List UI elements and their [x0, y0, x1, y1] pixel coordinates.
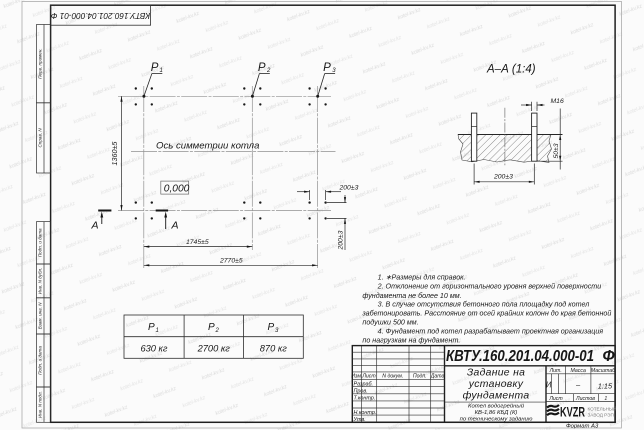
svg-text:A: A: [91, 220, 99, 232]
svg-text:3. В случае отсутствия бетонно: 3. В случае отсутствия бетонного пола пл…: [378, 300, 590, 308]
svg-text:4. Фундамент под котел разраба: 4. Фундамент под котел разрабатывает про…: [378, 328, 604, 336]
svg-text:Справ. N: Справ. N: [38, 128, 43, 148]
svg-text:по нагрузкам на фундамент.: по нагрузкам на фундамент.: [362, 337, 460, 345]
svg-text:2. Отклонение от горизонтально: 2. Отклонение от горизонтального уровня …: [377, 283, 602, 291]
svg-text:1. ∗Размеры для справок.: 1. ∗Размеры для справок.: [378, 274, 466, 282]
svg-text:Котел водогрейный: Котел водогрейный: [468, 403, 525, 410]
svg-text:Утв.: Утв.: [353, 417, 366, 423]
svg-text:Разраб.: Разраб.: [354, 381, 374, 387]
svg-text:P: P: [208, 322, 215, 333]
svg-text:Подп. и дата: Подп. и дата: [38, 228, 43, 257]
svg-text:Листов: Листов: [575, 396, 595, 402]
svg-text:P: P: [151, 62, 159, 74]
svg-text:Пров.: Пров.: [354, 389, 368, 395]
svg-text:0,000: 0,000: [164, 184, 190, 195]
svg-text:200±3: 200±3: [339, 185, 359, 192]
svg-text:КОТЕЛЬНЫЙ: КОТЕЛЬНЫЙ: [588, 405, 617, 412]
svg-text:P: P: [148, 322, 155, 333]
svg-text:630 кг: 630 кг: [140, 344, 167, 354]
svg-text:1745±5: 1745±5: [186, 239, 209, 246]
svg-text:фундамента: фундамента: [463, 390, 530, 402]
svg-text:P: P: [268, 322, 275, 333]
svg-text:–: –: [575, 381, 581, 390]
svg-text:Перв. примен.: Перв. примен.: [38, 48, 43, 79]
svg-text:Н.контр.: Н.контр.: [354, 410, 377, 416]
svg-text:2: 2: [266, 68, 271, 74]
svg-text:Подп.: Подп.: [413, 374, 427, 380]
svg-text:P: P: [258, 62, 266, 74]
svg-text:Ф: Ф: [603, 348, 616, 365]
svg-text:Т.контр.: Т.контр.: [354, 396, 376, 402]
svg-text:Задание на: Задание на: [467, 367, 525, 378]
svg-text:ЗАВОД РЭП: ЗАВОД РЭП: [588, 413, 614, 418]
svg-text:Масса: Масса: [571, 368, 586, 374]
svg-text:М16: М16: [551, 98, 564, 105]
svg-text:КВТУ.160.201.04.000-01 Ф: КВТУ.160.201.04.000-01 Ф: [51, 11, 151, 20]
svg-text:И: И: [546, 381, 552, 390]
svg-text:P: P: [323, 62, 331, 74]
svg-text:1:15: 1:15: [598, 381, 613, 390]
svg-text:1360±5: 1360±5: [110, 141, 119, 166]
svg-text:1: 1: [160, 68, 163, 74]
svg-text:200±3: 200±3: [493, 174, 513, 181]
svg-text:фундамента не более 10 мм.: фундамента не более 10 мм.: [362, 292, 461, 300]
svg-text:Масштаб: Масштаб: [591, 368, 616, 374]
svg-text:Лист: Лист: [548, 396, 563, 402]
svg-text:50±3: 50±3: [553, 143, 560, 158]
svg-text:забетонировать. Расстояние от: забетонировать. Расстояние от осей крайн…: [361, 310, 611, 318]
svg-text:КВТУ.160.201.04.000-01: КВТУ.160.201.04.000-01: [446, 348, 594, 365]
svg-text:подушки 500 мм.: подушки 500 мм.: [362, 319, 418, 327]
svg-text:1: 1: [604, 396, 607, 402]
svg-text:Формат А3: Формат А3: [566, 423, 599, 429]
svg-text:Изм.: Изм.: [351, 374, 362, 380]
svg-text:Дата: Дата: [430, 374, 445, 380]
svg-text:Ось симметрии котла: Ось симметрии котла: [156, 140, 259, 151]
svg-text:870 кг: 870 кг: [260, 344, 287, 354]
svg-text:200±3: 200±3: [337, 230, 344, 250]
svg-text:Инв. N дубл.: Инв. N дубл.: [38, 268, 43, 295]
svg-text:Лист: Лист: [361, 374, 376, 380]
svg-text:A: A: [171, 220, 179, 232]
svg-text:Инв. N подл.: Инв. N подл.: [38, 391, 43, 418]
svg-text:2770±5: 2770±5: [219, 258, 243, 265]
svg-text:Подп. и дата: Подп. и дата: [38, 346, 43, 375]
svg-text:установку: установку: [468, 379, 524, 390]
svg-text:А–А (1:4): А–А (1:4): [486, 64, 536, 76]
svg-text:2: 2: [215, 328, 220, 334]
svg-text:Взам. инв. N: Взам. инв. N: [38, 302, 43, 329]
svg-text:KVZR: KVZR: [560, 405, 585, 420]
svg-text:Лит.: Лит.: [549, 368, 562, 374]
svg-text:КВ-1,86 КБД (К): КВ-1,86 КБД (К): [475, 410, 518, 416]
svg-text:N докум.: N докум.: [382, 374, 403, 380]
svg-text:2700 кг: 2700 кг: [197, 344, 231, 354]
svg-text:1: 1: [156, 328, 159, 334]
svg-text:по техническому заданию: по техническому заданию: [460, 417, 533, 423]
